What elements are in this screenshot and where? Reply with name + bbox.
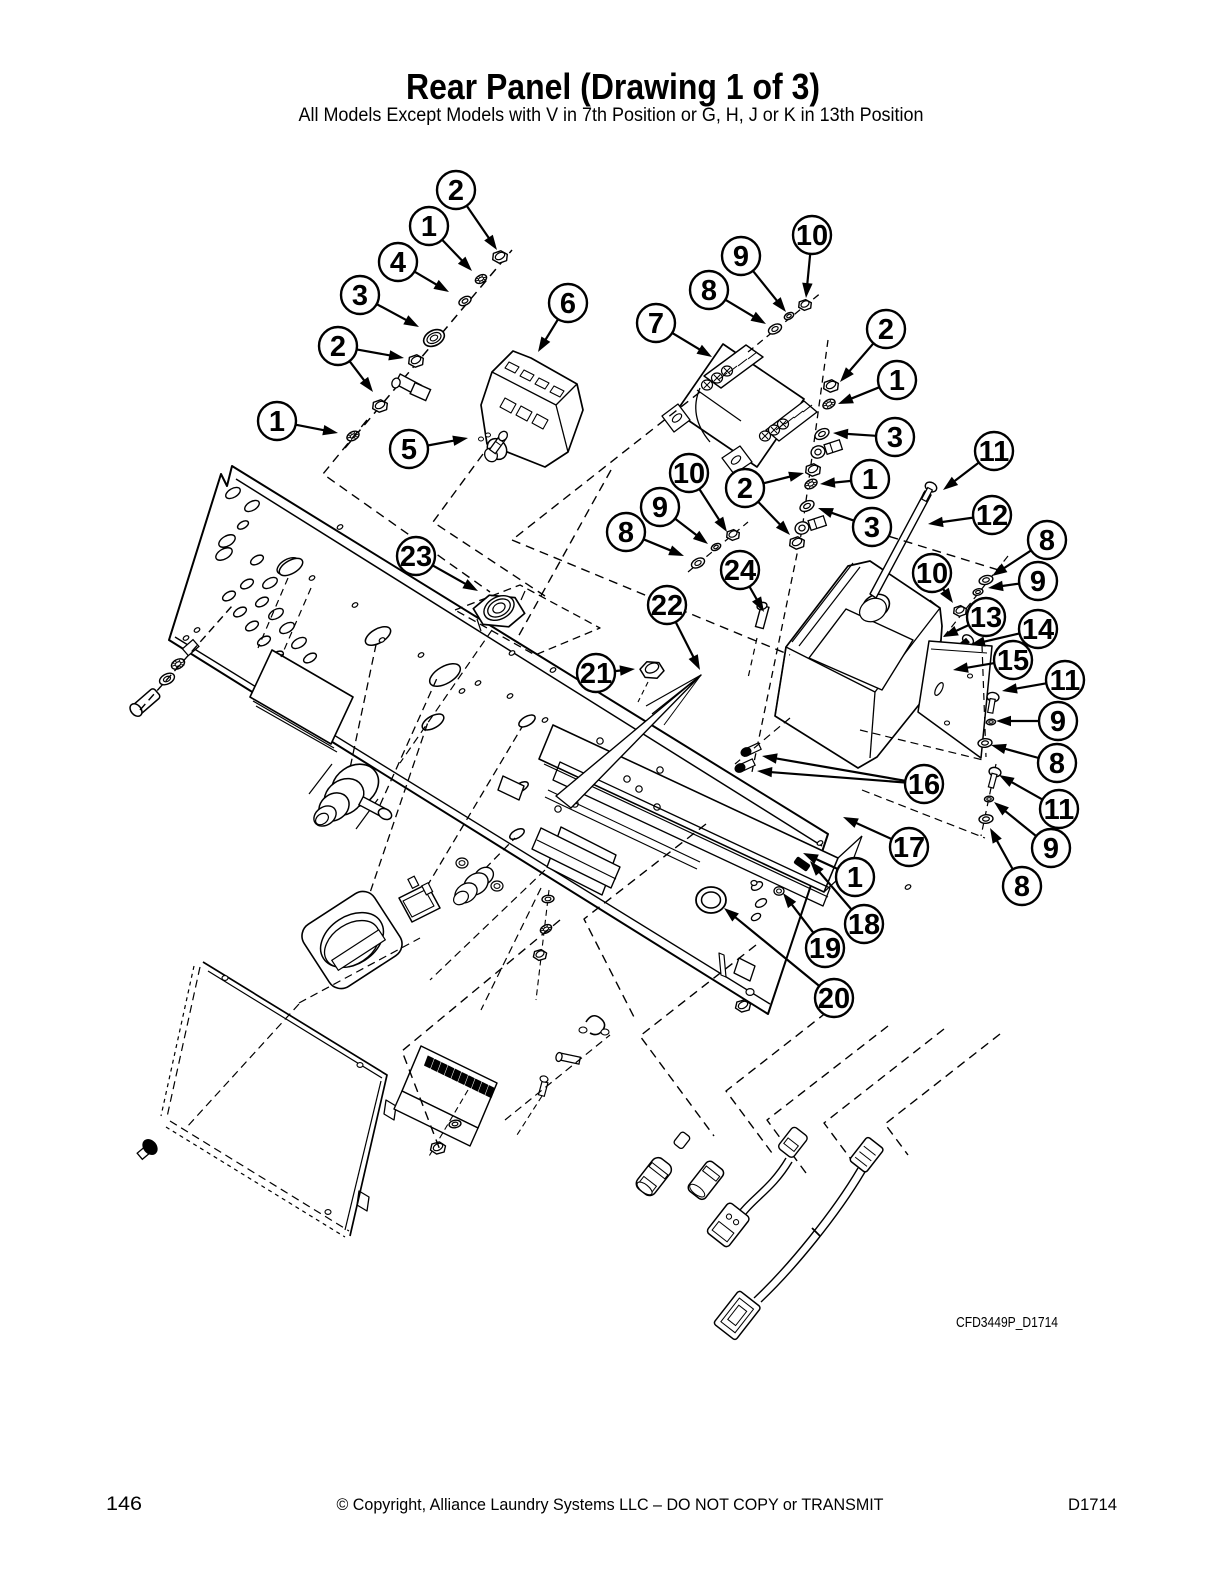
svg-text:10: 10 (673, 458, 705, 490)
svg-text:3: 3 (887, 422, 903, 454)
svg-text:20: 20 (818, 983, 850, 1015)
svg-text:8: 8 (1039, 525, 1055, 557)
svg-text:11: 11 (979, 436, 1010, 468)
svg-text:13: 13 (970, 602, 1002, 634)
svg-text:8: 8 (1049, 748, 1065, 780)
svg-text:1: 1 (269, 406, 285, 438)
svg-text:8: 8 (618, 517, 634, 549)
svg-text:5: 5 (401, 434, 417, 466)
svg-text:D1714: D1714 (1068, 1495, 1117, 1514)
svg-text:3: 3 (352, 280, 368, 312)
svg-text:23: 23 (400, 541, 432, 573)
svg-text:8: 8 (701, 275, 717, 307)
svg-text:2: 2 (330, 331, 346, 363)
svg-text:2: 2 (737, 473, 753, 505)
svg-text:19: 19 (809, 933, 841, 965)
svg-text:24: 24 (724, 555, 756, 587)
svg-text:146: 146 (106, 1494, 142, 1515)
svg-text:15: 15 (997, 645, 1029, 677)
svg-text:1: 1 (421, 211, 437, 243)
svg-text:18: 18 (848, 909, 880, 941)
svg-text:10: 10 (796, 220, 828, 252)
svg-text:9: 9 (1030, 566, 1046, 598)
svg-text:2: 2 (878, 314, 894, 346)
svg-text:9: 9 (1050, 706, 1066, 738)
svg-text:6: 6 (560, 288, 576, 320)
svg-text:22: 22 (651, 590, 683, 622)
svg-text:2: 2 (448, 175, 464, 207)
svg-text:1: 1 (889, 365, 905, 397)
svg-text:8: 8 (1014, 871, 1030, 903)
svg-text:1: 1 (847, 862, 863, 894)
svg-text:16: 16 (908, 769, 940, 801)
svg-text:12: 12 (976, 500, 1008, 532)
svg-text:9: 9 (1043, 833, 1059, 865)
svg-text:9: 9 (733, 241, 749, 273)
svg-text:11: 11 (1050, 665, 1081, 697)
svg-text:21: 21 (580, 658, 612, 690)
svg-text:All Models Except Models with: All Models Except Models with V in 7th P… (299, 104, 924, 126)
svg-text:CFD3449P_D1714: CFD3449P_D1714 (956, 1315, 1058, 1331)
svg-text:4: 4 (390, 247, 406, 279)
svg-text:11: 11 (1044, 794, 1075, 826)
svg-text:7: 7 (648, 308, 664, 340)
svg-text:9: 9 (652, 492, 668, 524)
svg-text:Rear Panel (Drawing 1 of 3): Rear Panel (Drawing 1 of 3) (406, 66, 820, 107)
svg-text:10: 10 (916, 558, 948, 590)
svg-text:© Copyright, Alliance Laundry: © Copyright, Alliance Laundry Systems LL… (337, 1495, 884, 1514)
svg-text:14: 14 (1022, 614, 1054, 646)
svg-text:3: 3 (864, 512, 880, 544)
svg-text:17: 17 (893, 832, 925, 864)
svg-text:1: 1 (862, 464, 878, 496)
